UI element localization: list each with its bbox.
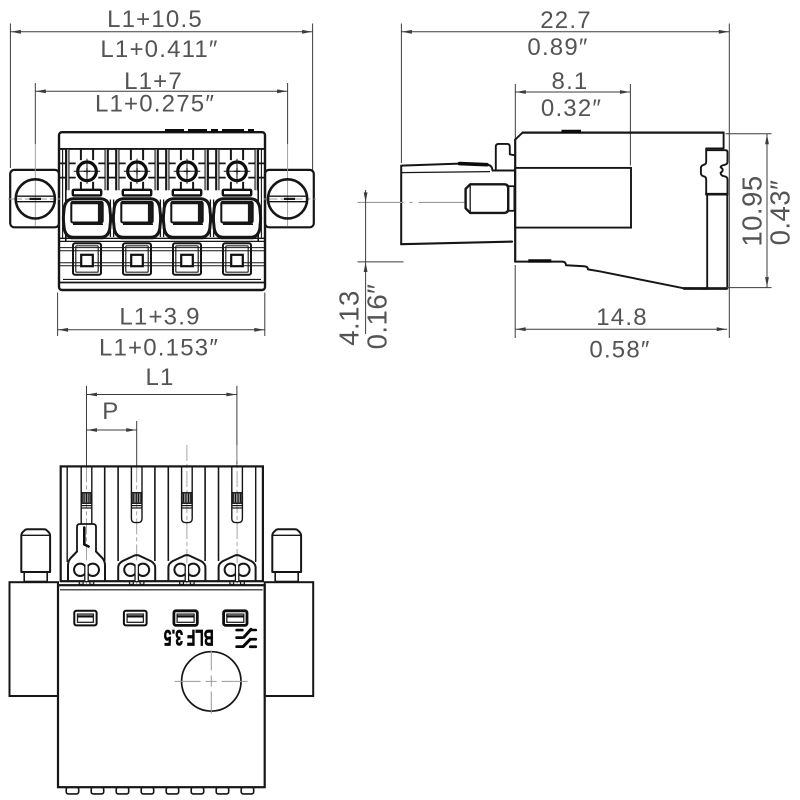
- svg-text:0.16″: 0.16″: [362, 284, 393, 350]
- svg-text:L1: L1: [145, 364, 174, 391]
- svg-text:L1+10.5: L1+10.5: [107, 6, 203, 33]
- svg-text:L1+0.275″: L1+0.275″: [95, 91, 215, 118]
- svg-text:L1+0.153″: L1+0.153″: [99, 334, 219, 361]
- svg-text:4.13: 4.13: [334, 290, 365, 346]
- svg-text:P: P: [102, 398, 119, 425]
- svg-text:14.8: 14.8: [596, 304, 648, 331]
- svg-text:0.32″: 0.32″: [541, 95, 602, 122]
- svg-text:10.95: 10.95: [737, 175, 768, 246]
- svg-text:0.43″: 0.43″: [765, 180, 796, 246]
- svg-text:L1+0.411″: L1+0.411″: [100, 36, 218, 63]
- svg-text:BLF 3.5: BLF 3.5: [164, 625, 214, 650]
- svg-text:8.1: 8.1: [552, 68, 589, 95]
- svg-text:22.7: 22.7: [540, 7, 592, 34]
- svg-text:0.89″: 0.89″: [527, 34, 588, 61]
- svg-text:0.58″: 0.58″: [589, 336, 650, 363]
- svg-text:L1+3.9: L1+3.9: [119, 304, 200, 331]
